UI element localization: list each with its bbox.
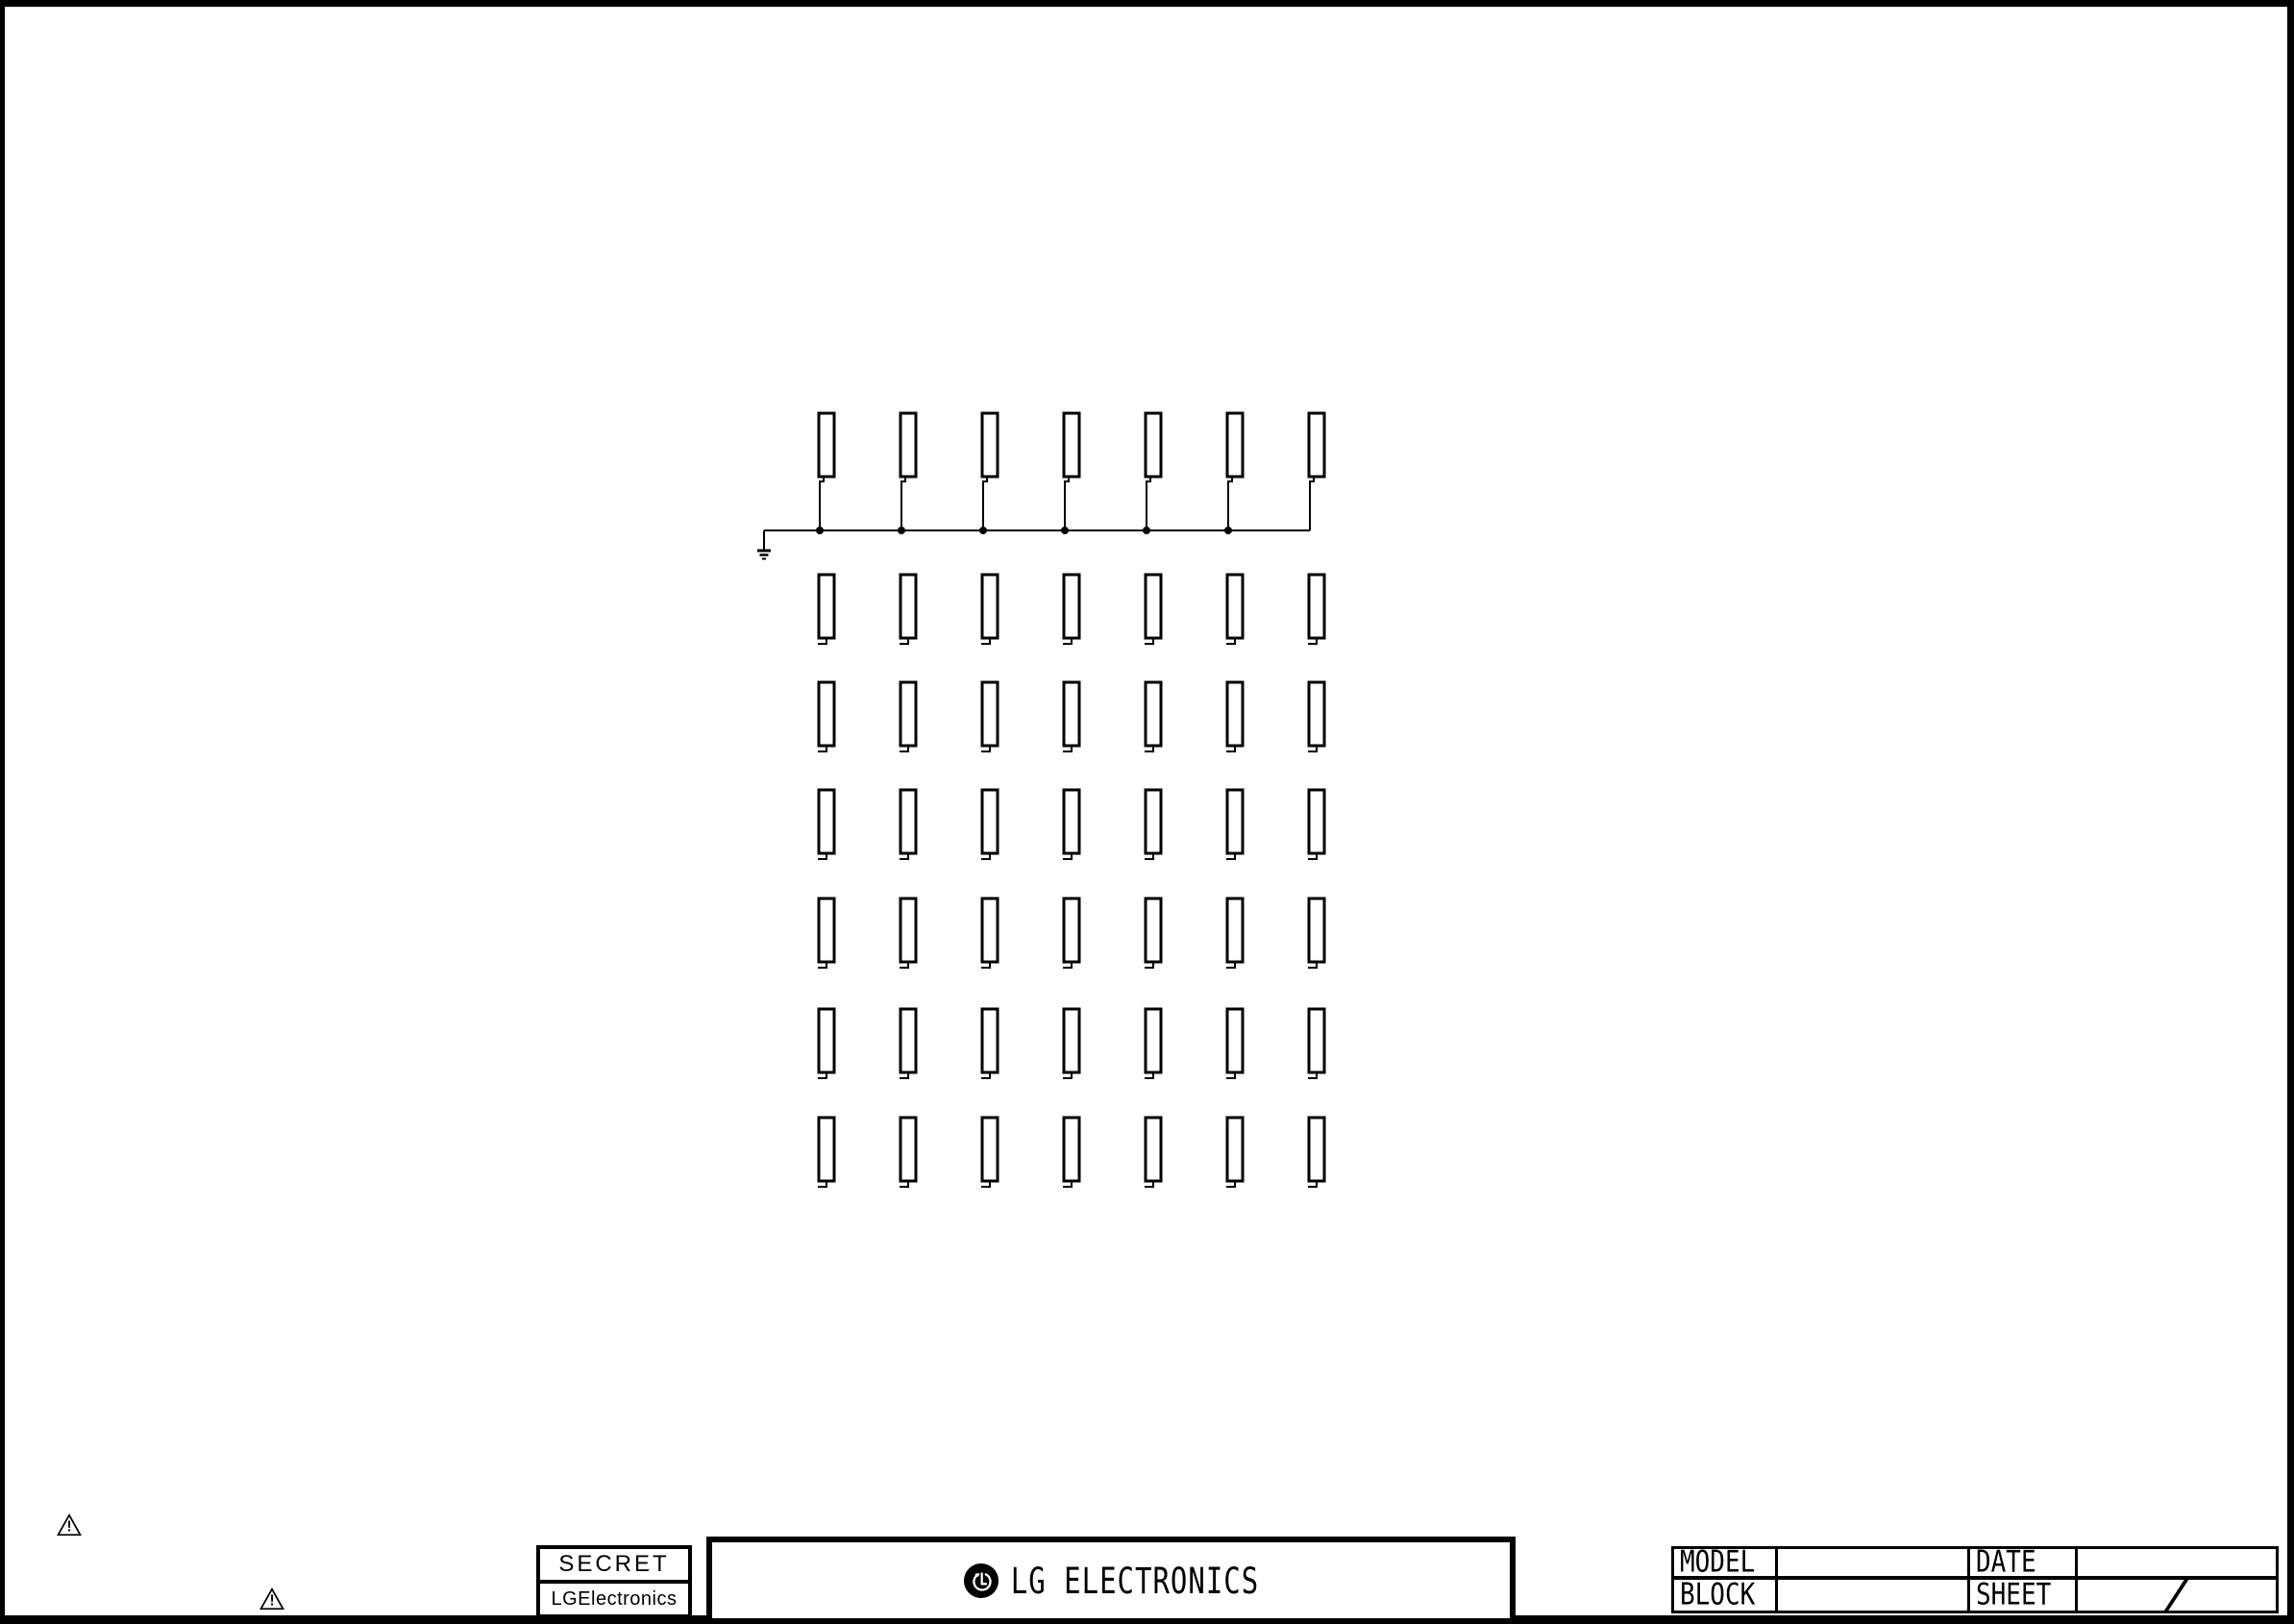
component-symbol <box>1226 1118 1243 1187</box>
brand-title-block: LG ELECTRONICS <box>706 1537 1516 1624</box>
junction-dot <box>816 527 824 534</box>
component-lead-wire <box>901 477 905 530</box>
component-symbol <box>981 1009 998 1078</box>
component-symbol <box>982 413 998 530</box>
junction-dot <box>1143 527 1150 534</box>
component-symbol <box>1145 1118 1161 1187</box>
sheet-label-cell: SHEET <box>1970 1580 2078 1611</box>
junction-dot <box>898 527 905 534</box>
warning-icon: ! <box>57 1513 82 1537</box>
component-symbol <box>900 1009 916 1078</box>
schematic-canvas <box>0 0 2294 1624</box>
component-lead-wire <box>820 477 824 530</box>
drawing-sheet: ! ! SECRET LGElectronics LG ELECTRONICS … <box>0 0 2294 1624</box>
component-symbol <box>818 898 834 968</box>
component-symbol <box>818 682 834 751</box>
component-symbol <box>900 575 916 644</box>
component-symbol <box>1063 898 1079 968</box>
warning-exclamation: ! <box>267 1592 276 1610</box>
component-symbol <box>1309 413 1324 530</box>
classification-label: SECRET <box>558 1551 669 1578</box>
component-symbol <box>1063 1009 1079 1078</box>
component-symbol <box>981 898 998 968</box>
component-symbol <box>1145 1009 1161 1078</box>
component-symbol <box>1226 1009 1243 1078</box>
date-label: DATE <box>1976 1549 2036 1580</box>
classification-cell: SECRET <box>540 1549 688 1584</box>
ground-symbol <box>757 530 771 559</box>
component-symbol <box>981 790 998 859</box>
junction-dot <box>979 527 987 534</box>
component-symbol <box>1145 790 1161 859</box>
component-symbol <box>819 413 834 530</box>
component-symbol <box>818 790 834 859</box>
component-symbol <box>1226 898 1243 968</box>
sheet-label: SHEET <box>1976 1580 2051 1611</box>
component-lead-wire <box>983 477 987 530</box>
component-symbol <box>900 898 916 968</box>
component-symbol <box>1063 790 1079 859</box>
lg-logo-icon <box>963 1562 999 1599</box>
component-symbol <box>818 575 834 644</box>
component-symbol <box>1226 575 1243 644</box>
component-symbol <box>1308 575 1324 644</box>
junction-dot <box>1061 527 1069 534</box>
date-value-cell <box>2078 1549 2276 1580</box>
component-symbol <box>1226 790 1243 859</box>
warning-exclamation: ! <box>64 1518 73 1536</box>
component-symbol <box>1308 790 1324 859</box>
block-label-cell: BLOCK <box>1674 1580 1778 1611</box>
component-symbol <box>1064 413 1079 530</box>
component-symbol <box>900 682 916 751</box>
component-symbol <box>1308 1009 1324 1078</box>
component-symbol <box>1308 898 1324 968</box>
sheet-value-cell: / <box>2078 1580 2276 1611</box>
component-lead-wire <box>1065 477 1069 530</box>
component-lead-wire <box>1310 477 1314 530</box>
component-symbol <box>1145 575 1161 644</box>
component-symbol <box>1063 1118 1079 1187</box>
date-label-cell: DATE <box>1970 1549 2078 1580</box>
component-symbol <box>818 1009 834 1078</box>
component-symbol <box>981 1118 998 1187</box>
component-symbol <box>900 790 916 859</box>
block-value-cell <box>1778 1580 1970 1611</box>
component-symbol <box>1226 682 1243 751</box>
component-symbol <box>1146 413 1161 530</box>
title-info-table: MODEL DATE BLOCK SHEET / <box>1671 1546 2279 1613</box>
model-label: MODEL <box>1680 1549 1755 1580</box>
component-symbol <box>1145 682 1161 751</box>
component-symbol <box>1308 1118 1324 1187</box>
block-label: BLOCK <box>1680 1580 1755 1611</box>
component-symbol <box>1227 413 1243 530</box>
component-symbol <box>818 1118 834 1187</box>
component-symbol <box>1063 682 1079 751</box>
company-cell: LGElectronics <box>540 1584 688 1614</box>
model-label-cell: MODEL <box>1674 1549 1778 1580</box>
component-symbol <box>900 1118 916 1187</box>
model-value-cell <box>1778 1549 1970 1580</box>
security-stamp: SECRET LGElectronics <box>536 1545 692 1618</box>
component-symbol <box>981 682 998 751</box>
component-symbol <box>900 413 916 530</box>
component-symbol <box>1145 898 1161 968</box>
brand-name-label: LG ELECTRONICS <box>1011 1560 1259 1602</box>
sheet-value: / <box>2161 1580 2192 1611</box>
component-lead-wire <box>1228 477 1232 530</box>
warning-icon: ! <box>259 1587 284 1611</box>
component-lead-wire <box>1147 477 1150 530</box>
component-symbol <box>1308 682 1324 751</box>
component-symbol <box>981 575 998 644</box>
junction-dot <box>1224 527 1232 534</box>
company-label: LGElectronics <box>552 1588 678 1611</box>
component-symbol <box>1063 575 1079 644</box>
